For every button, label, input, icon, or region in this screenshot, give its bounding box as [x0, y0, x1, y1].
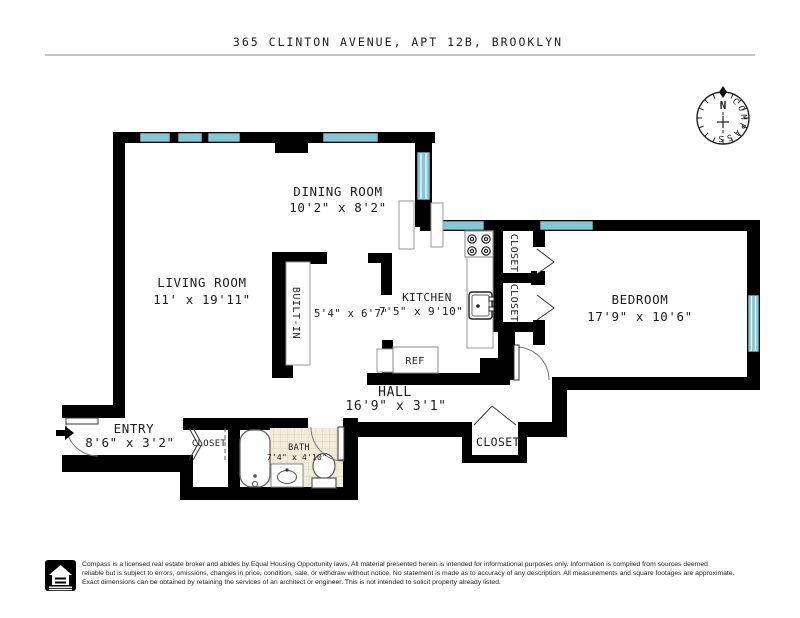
wall-segment [180, 487, 358, 500]
room-dims-bath: 7'4" x 4'10" [267, 453, 327, 462]
room-label-bath: BATH [288, 443, 310, 453]
entry-arrow-icon [56, 426, 74, 440]
door-arc [517, 347, 549, 380]
wall-segment [480, 358, 510, 385]
wall-segment [527, 422, 567, 437]
closet-door [537, 249, 554, 274]
bathtub-icon [240, 430, 270, 487]
page-title: 365 CLINTON AVENUE, APT 12B, BROOKLYN [233, 35, 563, 49]
window [437, 221, 484, 230]
closet-label-entry: CLOSET [192, 439, 227, 449]
room-label-dining: DINING ROOM [293, 184, 382, 199]
window [748, 295, 759, 352]
wall-segment [350, 422, 466, 437]
wall-segment [62, 455, 187, 472]
closet-door [474, 406, 516, 425]
bath-sink-icon [271, 464, 303, 487]
room-label-living: LIVING ROOM [157, 275, 246, 290]
wall-segment [462, 455, 527, 463]
wall-segment [368, 253, 392, 263]
equal-housing-logo-icon [45, 560, 76, 591]
door-leaf [514, 345, 519, 380]
closet-label-hall: CLOSET [476, 435, 520, 449]
room-dims-dining: 10'2" x 8'2" [289, 200, 387, 215]
footer: Compass is a licensed real estate broker… [45, 560, 735, 591]
wall-segment [552, 377, 760, 390]
window [323, 133, 378, 142]
room-dims-living: 11' x 19'11" [153, 292, 251, 307]
wall-segment [272, 252, 286, 378]
window [208, 133, 240, 142]
room-label-hall: HALL [378, 385, 412, 400]
window [178, 133, 202, 142]
floor-plan-page: 365 CLINTON AVENUE, APT 12B, BROOKLYN [0, 0, 800, 618]
footer-line-3: Exact dimensions can be obtained by reta… [82, 579, 501, 586]
room-dims-bedroom: 17'9" x 10'6" [587, 309, 693, 324]
fridge-label: REF [405, 356, 424, 367]
door-leaf [66, 418, 98, 424]
window [140, 133, 170, 142]
footer-line-2: reliable but is subject to errors, omiss… [82, 570, 735, 577]
wall-segment [533, 231, 545, 247]
wall-segment [533, 320, 545, 345]
kitchen-sink-icon [469, 292, 494, 319]
room-label-kitchen: KITCHEN [402, 291, 452, 304]
room-dims-hall: 16'9" x 3'1" [345, 399, 446, 414]
footer-line-1: Compass is a licensed real estate broker… [82, 561, 708, 568]
window [540, 221, 593, 230]
closet-door [537, 295, 554, 320]
room-dims-entry: 8'6" x 3'2" [85, 435, 174, 450]
floor-plan-svg: 365 CLINTON AVENUE, APT 12B, BROOKLYN [0, 0, 800, 618]
wall-segment [493, 273, 537, 283]
room-label-builtin: BUILT-IN [290, 287, 301, 339]
room-dims-foyer: 5'4" x 6'7" [314, 308, 388, 320]
cabinet [431, 203, 443, 247]
shelf-box [377, 349, 393, 372]
stove-icon [465, 231, 493, 257]
room-label-entry: ENTRY [114, 421, 155, 436]
closet-label-lower: CLOSET [508, 284, 519, 323]
wall-segment [113, 132, 125, 409]
header: 365 CLINTON AVENUE, APT 12B, BROOKLYN [45, 35, 755, 55]
wall-segment [275, 132, 308, 153]
compass: N COMPASS [697, 86, 749, 144]
compass-north-label: N [720, 99, 727, 112]
footer-disclaimer: Compass is a licensed real estate broker… [82, 561, 735, 586]
door-leaf [338, 427, 344, 460]
room-dims-kitchen: 7'5" x 9'10" [379, 305, 463, 318]
cabinet [399, 201, 414, 249]
room-label-bedroom: BEDROOM [612, 292, 669, 307]
closet-label-upper: CLOSET [508, 234, 519, 273]
window [417, 152, 430, 200]
